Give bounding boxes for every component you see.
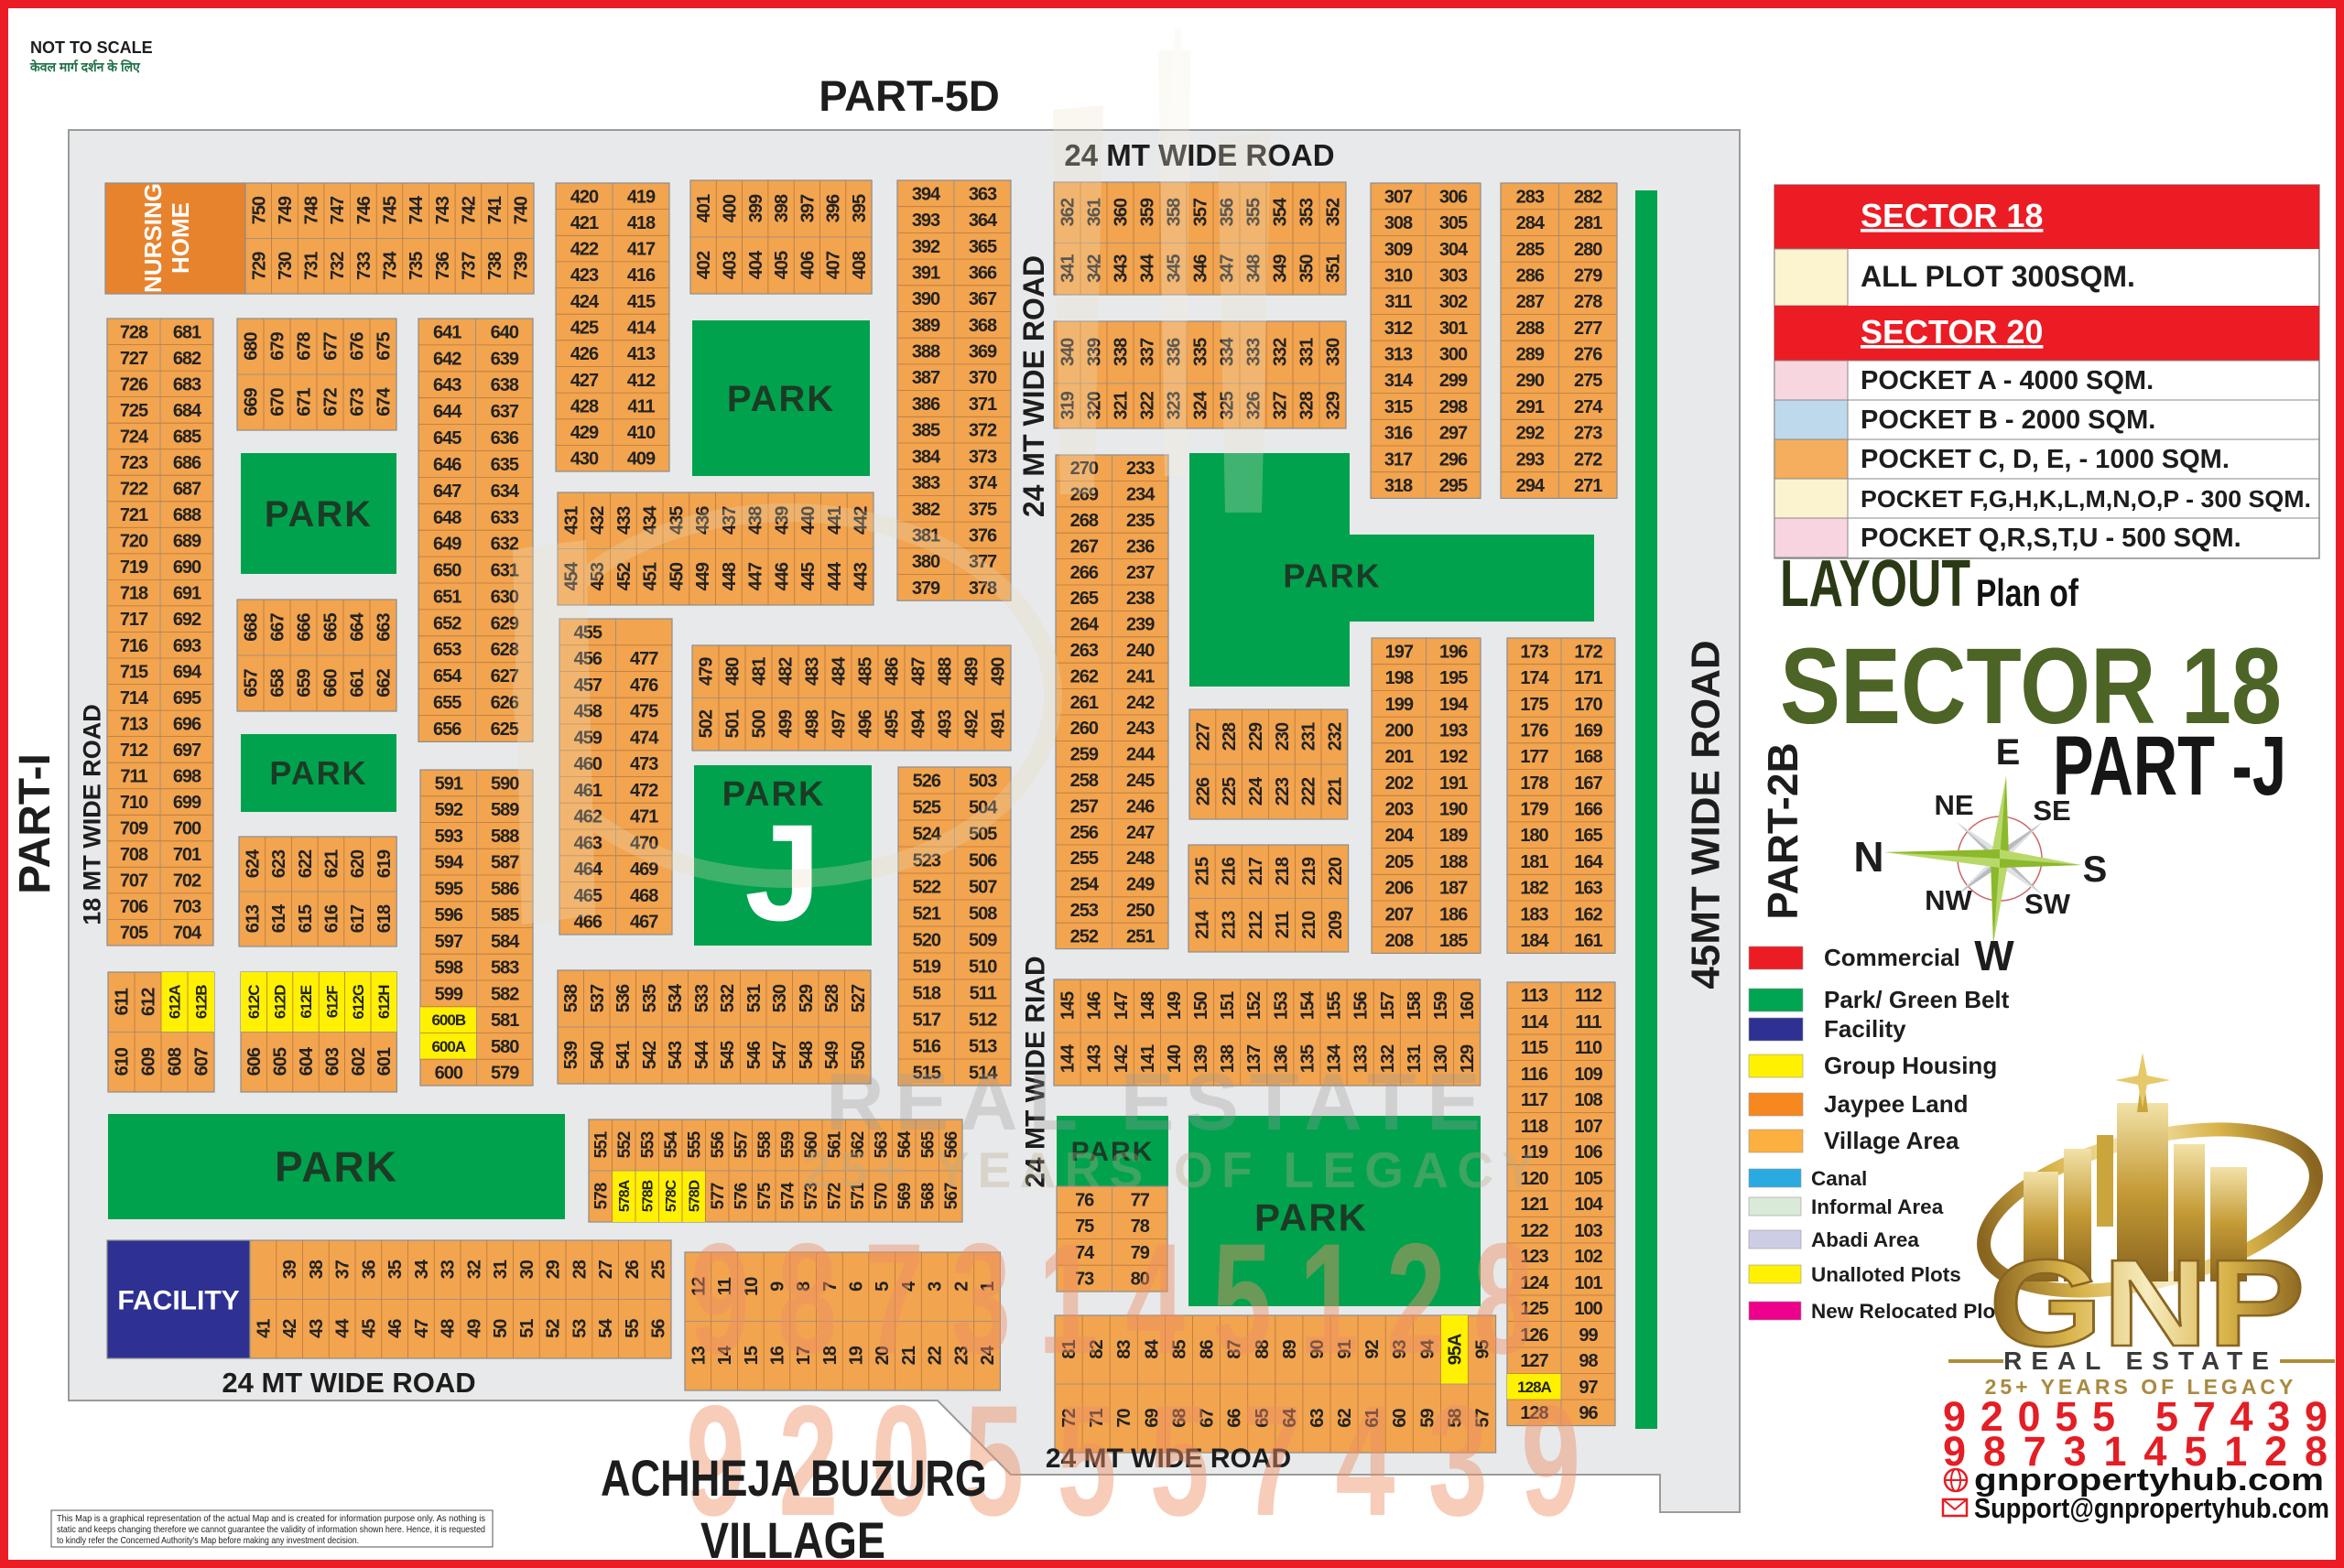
- svg-text:247: 247: [1126, 823, 1155, 843]
- svg-text:195: 195: [1439, 668, 1468, 688]
- svg-text:166: 166: [1574, 800, 1602, 820]
- svg-text:584: 584: [491, 932, 520, 952]
- svg-text:612E: 612E: [298, 985, 315, 1018]
- svg-text:748: 748: [302, 196, 322, 224]
- svg-text:513: 513: [969, 1037, 997, 1057]
- svg-text:749: 749: [276, 196, 296, 224]
- svg-text:602: 602: [349, 1047, 369, 1076]
- svg-text:205: 205: [1385, 852, 1414, 872]
- svg-text:670: 670: [268, 387, 288, 416]
- svg-text:164: 164: [1574, 852, 1603, 872]
- svg-text:351: 351: [1324, 254, 1344, 283]
- svg-text:600: 600: [435, 1064, 463, 1084]
- svg-text:248: 248: [1126, 849, 1155, 869]
- svg-text:283: 283: [1516, 187, 1545, 207]
- svg-text:214: 214: [1193, 910, 1213, 939]
- svg-text:411: 411: [627, 396, 655, 416]
- svg-text:551: 551: [591, 1130, 611, 1158]
- svg-text:194: 194: [1439, 695, 1469, 715]
- svg-text:407: 407: [824, 251, 844, 279]
- svg-text:212: 212: [1246, 911, 1266, 939]
- svg-text:29: 29: [544, 1260, 564, 1279]
- svg-text:285: 285: [1516, 240, 1545, 260]
- svg-text:260: 260: [1070, 719, 1099, 739]
- svg-text:SE: SE: [2033, 795, 2070, 827]
- svg-text:678: 678: [295, 331, 315, 360]
- svg-text:612C: 612C: [245, 985, 263, 1019]
- svg-text:535: 535: [640, 984, 660, 1012]
- svg-text:617: 617: [348, 904, 368, 933]
- svg-text:173: 173: [1520, 642, 1548, 662]
- svg-text:489: 489: [962, 657, 982, 686]
- svg-text:691: 691: [173, 584, 201, 604]
- svg-text:311: 311: [1384, 292, 1412, 312]
- svg-text:740: 740: [512, 196, 532, 224]
- svg-text:314: 314: [1384, 371, 1414, 391]
- svg-text:228: 228: [1220, 722, 1240, 751]
- svg-text:332: 332: [1271, 338, 1291, 366]
- svg-text:PARK: PARK: [269, 754, 367, 792]
- svg-text:219: 219: [1299, 857, 1319, 885]
- svg-text:373: 373: [969, 447, 997, 467]
- svg-text:211: 211: [1273, 911, 1293, 938]
- svg-text:276: 276: [1574, 345, 1602, 365]
- svg-text:508: 508: [969, 904, 997, 925]
- svg-text:PARK: PARK: [265, 494, 373, 535]
- svg-text:112: 112: [1575, 986, 1602, 1006]
- svg-text:390: 390: [912, 289, 940, 309]
- svg-text:733: 733: [354, 252, 374, 280]
- svg-text:178: 178: [1520, 773, 1548, 794]
- svg-text:671: 671: [295, 387, 315, 416]
- svg-text:369: 369: [969, 342, 997, 362]
- svg-text:503: 503: [969, 772, 997, 792]
- svg-text:251: 251: [1126, 926, 1155, 946]
- svg-text:636: 636: [491, 428, 519, 449]
- svg-text:661: 661: [348, 668, 368, 697]
- svg-text:295: 295: [1439, 476, 1468, 496]
- svg-text:24 MT WIDE ROAD: 24 MT WIDE ROAD: [1064, 138, 1334, 172]
- svg-text:302: 302: [1439, 292, 1468, 312]
- svg-text:580: 580: [491, 1037, 519, 1057]
- svg-text:612G: 612G: [350, 984, 367, 1019]
- svg-text:363: 363: [969, 184, 997, 204]
- svg-text:447: 447: [746, 562, 766, 590]
- svg-text:644: 644: [433, 402, 462, 422]
- svg-text:262: 262: [1070, 666, 1099, 687]
- svg-text:693: 693: [173, 636, 201, 656]
- svg-text:648: 648: [433, 508, 461, 528]
- svg-text:109: 109: [1574, 1065, 1602, 1085]
- svg-text:28: 28: [570, 1260, 590, 1279]
- svg-text:709: 709: [120, 819, 148, 839]
- svg-text:301: 301: [1439, 319, 1468, 339]
- svg-text:536: 536: [613, 984, 634, 1012]
- svg-text:117: 117: [1521, 1090, 1548, 1110]
- svg-text:646: 646: [433, 455, 461, 475]
- svg-text:623: 623: [269, 849, 289, 878]
- svg-text:185: 185: [1439, 931, 1468, 951]
- svg-text:380: 380: [912, 552, 940, 572]
- svg-text:467: 467: [630, 913, 658, 933]
- svg-text:732: 732: [328, 252, 348, 280]
- svg-text:PARK: PARK: [275, 1143, 398, 1191]
- svg-text:252: 252: [1070, 926, 1099, 946]
- svg-text:LAYOUT: LAYOUT: [1780, 547, 1970, 621]
- svg-text:POCKET A - 4000 SQM.: POCKET A - 4000 SQM.: [1861, 366, 2154, 395]
- svg-text:54: 54: [596, 1318, 616, 1338]
- svg-text:506: 506: [969, 851, 997, 871]
- svg-text:592: 592: [435, 800, 463, 820]
- svg-text:484: 484: [830, 656, 850, 686]
- svg-text:375: 375: [969, 500, 997, 520]
- svg-text:300: 300: [1439, 345, 1468, 365]
- svg-text:SECTOR 20: SECTOR 20: [1861, 313, 2043, 351]
- svg-text:443: 443: [852, 562, 872, 590]
- svg-text:431: 431: [561, 506, 581, 535]
- svg-text:101: 101: [1574, 1273, 1602, 1293]
- svg-text:502: 502: [697, 709, 717, 738]
- svg-text:92: 92: [1362, 1340, 1383, 1359]
- svg-text:609: 609: [139, 1047, 159, 1076]
- svg-text:680: 680: [242, 331, 262, 360]
- svg-text:476: 476: [630, 676, 658, 696]
- svg-text:278: 278: [1574, 292, 1602, 312]
- svg-text:288: 288: [1516, 319, 1545, 339]
- svg-text:307: 307: [1384, 187, 1413, 207]
- svg-text:346: 346: [1191, 254, 1211, 283]
- svg-text:694: 694: [173, 662, 202, 682]
- svg-text:552: 552: [615, 1131, 635, 1158]
- svg-text:215: 215: [1193, 857, 1213, 885]
- svg-text:297: 297: [1439, 424, 1468, 444]
- svg-text:51: 51: [517, 1319, 537, 1338]
- svg-text:730: 730: [276, 252, 296, 280]
- svg-text:721: 721: [120, 505, 148, 525]
- svg-text:197: 197: [1385, 642, 1414, 662]
- svg-text:452: 452: [614, 562, 635, 590]
- svg-text:393: 393: [912, 211, 940, 231]
- svg-text:575: 575: [755, 1182, 775, 1209]
- svg-text:719: 719: [120, 557, 148, 578]
- svg-text:293: 293: [1516, 449, 1545, 470]
- svg-text:34: 34: [412, 1259, 432, 1279]
- svg-text:159: 159: [1431, 991, 1451, 1020]
- svg-text:601: 601: [374, 1047, 395, 1076]
- svg-text:343: 343: [1112, 254, 1132, 283]
- svg-text:608: 608: [166, 1047, 186, 1076]
- svg-text:331: 331: [1297, 338, 1318, 366]
- svg-text:692: 692: [173, 610, 201, 630]
- svg-text:500: 500: [750, 709, 770, 738]
- svg-text:659: 659: [295, 668, 315, 697]
- svg-text:238: 238: [1126, 589, 1155, 609]
- svg-text:605: 605: [271, 1047, 291, 1076]
- svg-text:547: 547: [770, 1041, 790, 1069]
- svg-text:679: 679: [268, 331, 288, 360]
- svg-text:663: 663: [374, 612, 395, 641]
- svg-text:750: 750: [249, 196, 269, 224]
- svg-text:612F: 612F: [323, 986, 341, 1018]
- svg-text:654: 654: [433, 666, 462, 687]
- svg-text:316: 316: [1384, 424, 1413, 444]
- svg-text:424: 424: [570, 292, 600, 312]
- svg-text:115: 115: [1521, 1038, 1548, 1058]
- svg-text:746: 746: [354, 196, 374, 224]
- svg-text:398: 398: [772, 194, 792, 222]
- svg-text:710: 710: [120, 793, 148, 813]
- svg-text:310: 310: [1384, 266, 1413, 287]
- svg-text:233: 233: [1126, 459, 1155, 479]
- svg-text:612: 612: [139, 988, 159, 1016]
- svg-text:448: 448: [720, 562, 740, 590]
- svg-text:150: 150: [1191, 991, 1211, 1020]
- svg-text:468: 468: [630, 886, 658, 906]
- svg-text:509: 509: [969, 931, 997, 951]
- svg-text:50: 50: [491, 1319, 511, 1338]
- svg-text:24 MT WIDE ROAD: 24 MT WIDE ROAD: [222, 1367, 475, 1399]
- svg-text:738: 738: [485, 252, 505, 280]
- svg-text:Facility: Facility: [1824, 1015, 1906, 1043]
- svg-text:412: 412: [627, 371, 656, 391]
- svg-text:664: 664: [348, 611, 368, 641]
- svg-text:578A: 578A: [617, 1179, 633, 1212]
- svg-text:612A: 612A: [166, 985, 183, 1019]
- svg-text:53: 53: [570, 1319, 590, 1338]
- svg-text:196: 196: [1439, 642, 1468, 662]
- svg-text:624: 624: [243, 849, 263, 878]
- svg-text:556: 556: [709, 1131, 728, 1158]
- svg-text:275: 275: [1574, 371, 1602, 391]
- svg-text:318: 318: [1384, 476, 1413, 496]
- svg-text:201: 201: [1385, 747, 1414, 767]
- svg-text:526: 526: [913, 772, 941, 792]
- svg-text:495: 495: [883, 709, 903, 738]
- svg-text:743: 743: [433, 196, 453, 224]
- svg-text:510: 510: [969, 957, 997, 978]
- svg-text:27: 27: [596, 1260, 616, 1279]
- svg-text:Jaypee Land: Jaypee Land: [1824, 1090, 1969, 1118]
- svg-text:303: 303: [1439, 266, 1468, 287]
- svg-text:472: 472: [630, 781, 658, 801]
- svg-text:482: 482: [776, 657, 797, 686]
- svg-text:FACILITY: FACILITY: [117, 1286, 239, 1316]
- svg-text:628: 628: [491, 640, 519, 660]
- svg-text:420: 420: [570, 187, 599, 207]
- svg-text:322: 322: [1138, 391, 1158, 419]
- svg-text:365: 365: [969, 237, 997, 257]
- svg-text:713: 713: [120, 714, 148, 734]
- svg-text:148: 148: [1138, 991, 1158, 1020]
- svg-text:153: 153: [1271, 991, 1291, 1020]
- svg-text:223: 223: [1273, 777, 1293, 806]
- svg-text:731: 731: [302, 252, 322, 280]
- svg-text:360: 360: [1112, 198, 1132, 226]
- svg-text:667: 667: [268, 612, 288, 641]
- svg-text:REAL ESTATE: REAL ESTATE: [2003, 1346, 2278, 1375]
- svg-text:396: 396: [824, 194, 844, 222]
- svg-text:224: 224: [1246, 776, 1266, 806]
- svg-text:199: 199: [1385, 695, 1414, 715]
- svg-text:520: 520: [913, 931, 941, 951]
- svg-text:498: 498: [803, 709, 823, 738]
- svg-text:271: 271: [1574, 476, 1602, 496]
- svg-text:292: 292: [1516, 424, 1545, 444]
- svg-text:739: 739: [512, 252, 532, 280]
- svg-text:612D: 612D: [272, 985, 289, 1019]
- svg-text:42: 42: [280, 1319, 300, 1338]
- svg-text:621: 621: [322, 849, 342, 878]
- svg-text:446: 446: [772, 562, 792, 590]
- svg-text:162: 162: [1574, 904, 1602, 925]
- svg-text:226: 226: [1193, 777, 1213, 806]
- svg-text:392: 392: [912, 237, 940, 257]
- svg-text:22: 22: [926, 1346, 946, 1365]
- svg-text:400: 400: [720, 194, 740, 222]
- svg-text:668: 668: [242, 612, 262, 641]
- svg-text:577: 577: [709, 1183, 728, 1209]
- svg-text:41: 41: [254, 1319, 274, 1338]
- svg-text:181: 181: [1520, 852, 1548, 872]
- svg-text:727: 727: [120, 349, 148, 369]
- svg-text:E: E: [1996, 732, 2021, 773]
- svg-text:610: 610: [113, 1047, 133, 1076]
- svg-text:264: 264: [1070, 615, 1100, 635]
- svg-text:485: 485: [856, 657, 876, 686]
- svg-text:306: 306: [1439, 187, 1468, 207]
- svg-text:353: 353: [1297, 198, 1318, 226]
- svg-text:210: 210: [1299, 911, 1319, 939]
- svg-text:647: 647: [433, 481, 461, 502]
- svg-text:45MT WIDE ROAD: 45MT WIDE ROAD: [1683, 640, 1728, 989]
- svg-text:169: 169: [1574, 721, 1602, 741]
- svg-text:615: 615: [296, 904, 316, 933]
- svg-text:111: 111: [1575, 1012, 1601, 1033]
- svg-text:146: 146: [1085, 991, 1105, 1020]
- svg-text:417: 417: [627, 240, 656, 260]
- svg-text:543: 543: [666, 1041, 686, 1069]
- svg-text:674: 674: [374, 386, 395, 416]
- svg-text:230: 230: [1273, 722, 1293, 751]
- svg-text:179: 179: [1520, 800, 1548, 820]
- svg-text:450: 450: [667, 562, 687, 590]
- svg-text:413: 413: [627, 344, 656, 364]
- svg-text:606: 606: [244, 1047, 265, 1076]
- svg-text:364: 364: [969, 211, 998, 231]
- svg-text:690: 690: [173, 557, 201, 578]
- svg-text:259: 259: [1070, 745, 1099, 765]
- svg-text:540: 540: [588, 1041, 608, 1069]
- svg-text:66: 66: [1225, 1409, 1245, 1428]
- svg-text:PARK: PARK: [1283, 557, 1381, 595]
- svg-text:416: 416: [627, 265, 656, 286]
- svg-text:151: 151: [1218, 991, 1238, 1020]
- svg-text:578C: 578C: [664, 1179, 679, 1212]
- svg-text:POCKET F,G,H,K,L,M,N,O,P -: POCKET F,G,H,K,L,M,N,O,P - 300 SQM.: [1861, 485, 2311, 513]
- svg-text:684: 684: [173, 401, 202, 421]
- svg-text:104: 104: [1574, 1195, 1603, 1215]
- svg-text:537: 537: [588, 984, 608, 1012]
- svg-text:231: 231: [1299, 722, 1319, 751]
- svg-text:308: 308: [1384, 213, 1413, 233]
- svg-text:657: 657: [242, 668, 262, 697]
- svg-text:45: 45: [359, 1319, 379, 1338]
- svg-text:473: 473: [630, 754, 658, 774]
- svg-text:203: 203: [1385, 800, 1414, 820]
- svg-text:32: 32: [464, 1260, 484, 1279]
- svg-text:284: 284: [1516, 213, 1546, 233]
- svg-text:480: 480: [723, 657, 743, 686]
- svg-text:261: 261: [1070, 693, 1099, 713]
- svg-text:371: 371: [969, 395, 997, 415]
- svg-text:639: 639: [491, 349, 519, 369]
- svg-text:372: 372: [969, 421, 997, 441]
- svg-text:116: 116: [1521, 1065, 1548, 1085]
- svg-text:376: 376: [969, 525, 997, 546]
- svg-text:531: 531: [744, 984, 765, 1012]
- svg-text:519: 519: [913, 957, 941, 978]
- svg-text:165: 165: [1574, 826, 1602, 846]
- svg-text:414: 414: [627, 319, 657, 339]
- svg-text:305: 305: [1439, 213, 1468, 233]
- svg-text:102: 102: [1574, 1247, 1602, 1267]
- svg-text:243: 243: [1126, 719, 1155, 739]
- svg-text:597: 597: [435, 932, 463, 952]
- svg-text:105: 105: [1574, 1169, 1602, 1189]
- svg-text:234: 234: [1126, 485, 1156, 505]
- svg-text:406: 406: [798, 251, 818, 279]
- svg-text:3: 3: [926, 1281, 946, 1292]
- svg-text:395: 395: [850, 194, 870, 222]
- svg-text:266: 266: [1070, 563, 1099, 583]
- svg-text:95A: 95A: [1446, 1334, 1466, 1365]
- svg-text:282: 282: [1574, 187, 1602, 207]
- svg-text:208: 208: [1385, 931, 1414, 951]
- svg-text:555: 555: [685, 1130, 704, 1158]
- svg-text:652: 652: [433, 613, 461, 633]
- svg-text:726: 726: [120, 374, 148, 395]
- svg-text:209: 209: [1326, 911, 1346, 939]
- svg-text:481: 481: [750, 657, 770, 686]
- svg-text:192: 192: [1439, 747, 1468, 767]
- svg-text:640: 640: [491, 322, 519, 342]
- svg-text:445: 445: [798, 562, 819, 590]
- svg-text:653: 653: [433, 640, 461, 660]
- svg-text:676: 676: [348, 331, 368, 360]
- svg-text:298: 298: [1439, 397, 1468, 417]
- svg-text:700: 700: [173, 819, 201, 839]
- svg-text:250: 250: [1126, 901, 1155, 921]
- svg-text:249: 249: [1126, 875, 1155, 895]
- svg-text:289: 289: [1516, 345, 1545, 365]
- svg-text:44: 44: [333, 1318, 353, 1338]
- svg-text:548: 548: [797, 1041, 817, 1069]
- svg-text:235: 235: [1126, 511, 1155, 531]
- svg-text:330: 330: [1324, 338, 1344, 366]
- svg-text:714: 714: [120, 688, 149, 708]
- svg-text:202: 202: [1385, 773, 1414, 794]
- svg-text:299: 299: [1439, 371, 1468, 391]
- svg-text:207: 207: [1385, 904, 1414, 925]
- svg-text:404: 404: [746, 250, 766, 279]
- svg-text:415: 415: [627, 292, 656, 312]
- svg-text:490: 490: [989, 657, 1009, 686]
- svg-text:486: 486: [883, 657, 903, 686]
- svg-text:384: 384: [912, 447, 941, 467]
- svg-text:31: 31: [491, 1260, 511, 1279]
- svg-text:527: 527: [849, 984, 869, 1012]
- svg-text:507: 507: [969, 878, 997, 898]
